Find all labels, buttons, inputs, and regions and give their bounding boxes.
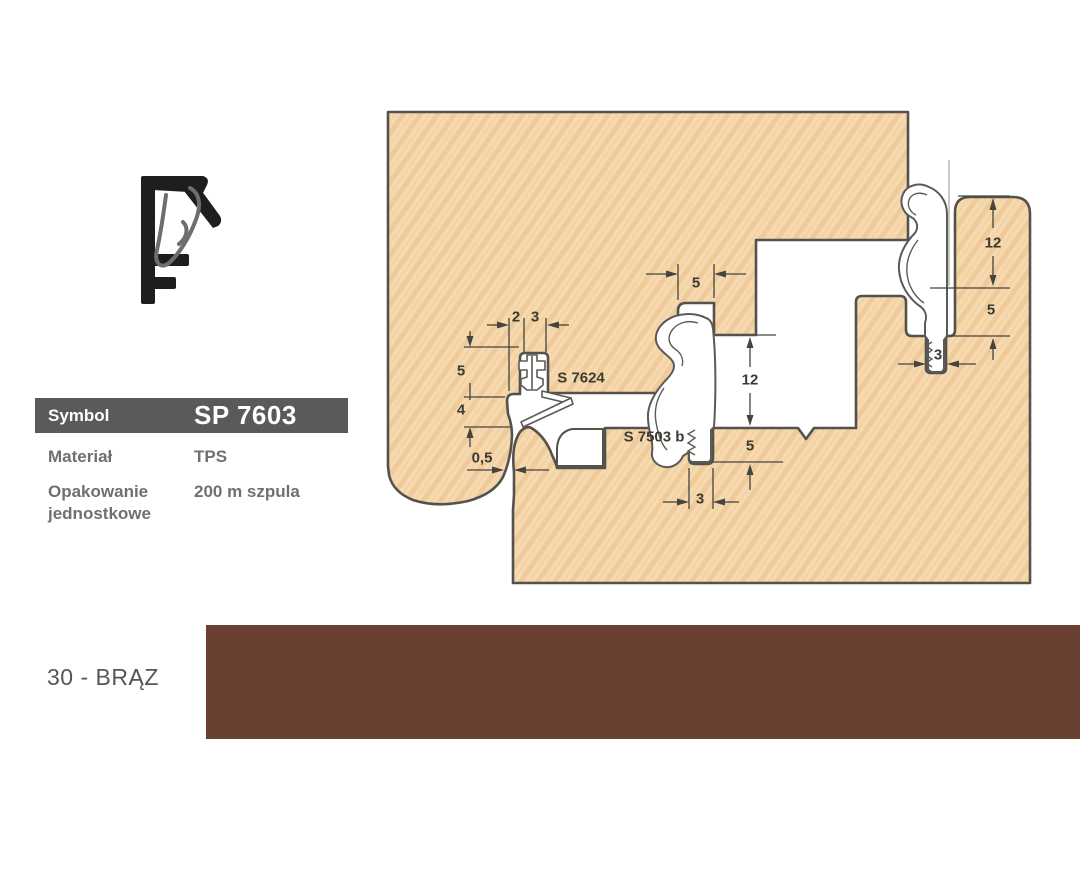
symbol-value: SP 7603 <box>194 400 297 431</box>
seal-ref-label: S 7624 <box>557 370 605 387</box>
symbol-label: Symbol <box>35 406 194 426</box>
material-value: TPS <box>194 446 227 468</box>
spec-header-row: Symbol SP 7603 <box>35 398 348 433</box>
dim-label: 12 <box>985 235 1002 252</box>
frame-drain-pocket <box>557 429 603 466</box>
dim-label: 0,5 <box>472 450 493 467</box>
dim-label: 4 <box>457 402 465 419</box>
dim-label: 2 <box>512 309 520 326</box>
dim-label: 5 <box>692 275 700 292</box>
dim-label: 3 <box>934 347 942 364</box>
packaging-value: 200 m szpula <box>194 481 300 525</box>
dim-label: 12 <box>742 372 759 389</box>
seal-ref-label: S 7503 b <box>624 429 685 446</box>
packaging-label: Opakowanie jednostkowe <box>35 481 194 525</box>
dim-label: 5 <box>746 438 754 455</box>
dim-label: 3 <box>531 309 539 326</box>
material-label: Materiał <box>35 446 194 468</box>
packaging-row: Opakowanie jednostkowe 200 m szpula <box>35 481 348 525</box>
dim-label: 5 <box>457 363 465 380</box>
spec-table: Symbol SP 7603 Materiał TPS Opakowanie j… <box>35 398 348 525</box>
material-row: Materiał TPS <box>35 446 348 468</box>
dim-label: 5 <box>987 302 995 319</box>
datasheet-page: Symbol SP 7603 Materiał TPS Opakowanie j… <box>0 0 1080 880</box>
color-name-label: 30 - BRĄZ <box>47 664 159 691</box>
color-swatch <box>206 625 1080 739</box>
seal-profile-icon <box>133 170 228 310</box>
dim-label: 3 <box>696 491 704 508</box>
